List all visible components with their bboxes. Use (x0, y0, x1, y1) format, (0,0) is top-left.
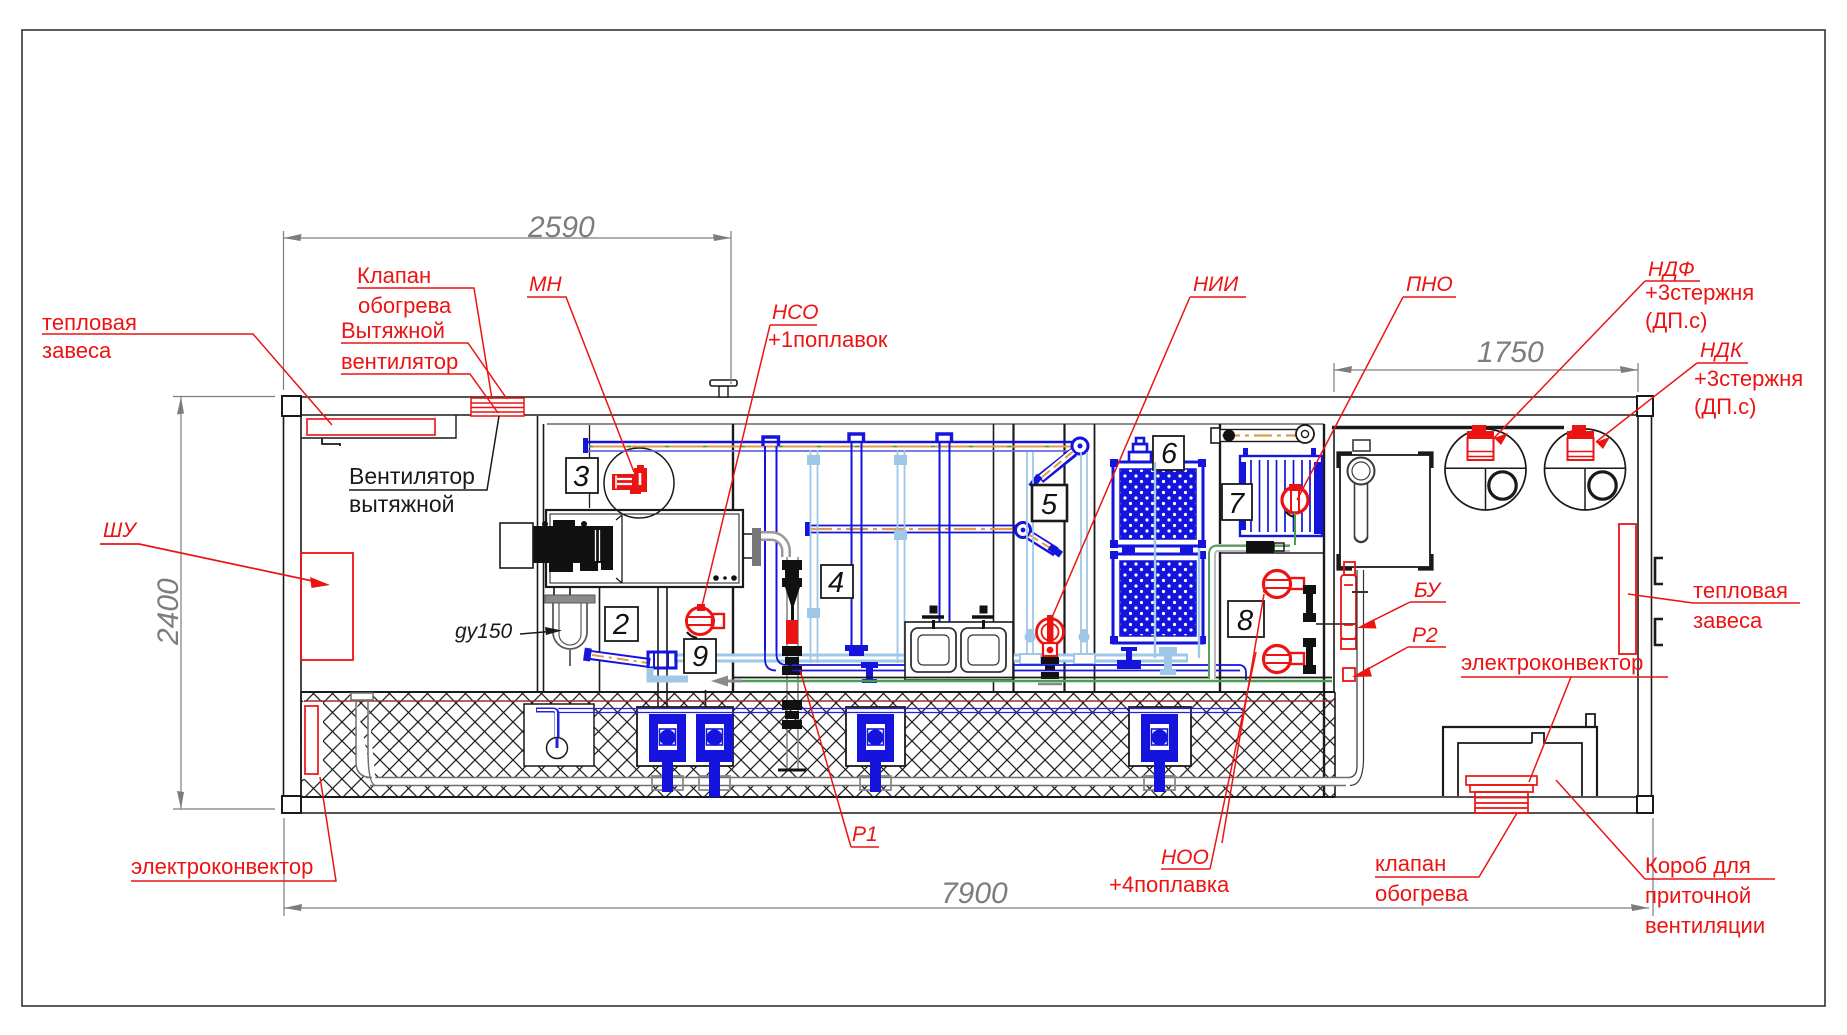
svg-text:2590: 2590 (527, 211, 595, 244)
svg-text:БУ: БУ (1414, 579, 1442, 602)
svg-text:НДК: НДК (1700, 339, 1744, 362)
svg-text:НСО: НСО (772, 301, 818, 324)
svg-text:обогрева: обогрева (358, 293, 452, 318)
svg-text:4: 4 (828, 567, 844, 599)
svg-text:+3стержня: +3стержня (1645, 280, 1754, 305)
svg-text:МН: МН (529, 273, 562, 296)
svg-text:тепловая: тепловая (1693, 578, 1788, 603)
svg-text:вытяжной: вытяжной (349, 491, 454, 517)
svg-text:вентилятор: вентилятор (341, 349, 458, 374)
svg-text:НОО: НОО (1161, 846, 1209, 869)
svg-text:Вентилятор: Вентилятор (349, 463, 475, 489)
svg-text:обогрева: обогрева (1375, 881, 1469, 906)
svg-text:2: 2 (612, 609, 629, 641)
svg-text:3: 3 (573, 461, 589, 493)
svg-text:Р2: Р2 (1412, 624, 1438, 647)
svg-text:вентиляции: вентиляции (1645, 913, 1765, 938)
svg-text:Короб для: Короб для (1645, 853, 1751, 878)
svg-text:завеса: завеса (42, 338, 112, 363)
svg-text:(ДП.с): (ДП.с) (1645, 308, 1707, 333)
svg-text:ШУ: ШУ (103, 519, 138, 542)
svg-text:завеса: завеса (1693, 608, 1763, 633)
svg-text:электроконвектор: электроконвектор (1461, 650, 1643, 675)
svg-text:5: 5 (1041, 489, 1058, 521)
svg-text:электроконвектор: электроконвектор (131, 854, 313, 879)
svg-text:НИИ: НИИ (1193, 273, 1239, 296)
svg-text:8: 8 (1237, 605, 1253, 637)
svg-text:+1поплавок: +1поплавок (768, 327, 888, 352)
svg-text:тепловая: тепловая (42, 310, 137, 335)
svg-text:+4поплавка: +4поплавка (1109, 872, 1230, 897)
svg-text:7: 7 (1228, 488, 1246, 520)
svg-text:1750: 1750 (1477, 336, 1544, 369)
svg-text:Вытяжной: Вытяжной (341, 318, 445, 343)
svg-text:9: 9 (692, 641, 708, 673)
svg-text:Р1: Р1 (852, 823, 878, 846)
svg-text:(ДП.с): (ДП.с) (1694, 394, 1756, 419)
svg-text:приточной: приточной (1645, 883, 1751, 908)
svg-text:6: 6 (1161, 438, 1178, 470)
svg-text:Клапан: Клапан (357, 263, 431, 288)
svg-text:клапан: клапан (1375, 851, 1446, 876)
svg-text:7900: 7900 (941, 877, 1008, 910)
svg-text:ПНО: ПНО (1406, 273, 1453, 296)
svg-text:2400: 2400 (152, 578, 185, 646)
svg-text:+3стержня: +3стержня (1694, 366, 1803, 391)
svg-text:gy150: gy150 (455, 620, 513, 643)
svg-text:НДФ: НДФ (1648, 258, 1695, 281)
